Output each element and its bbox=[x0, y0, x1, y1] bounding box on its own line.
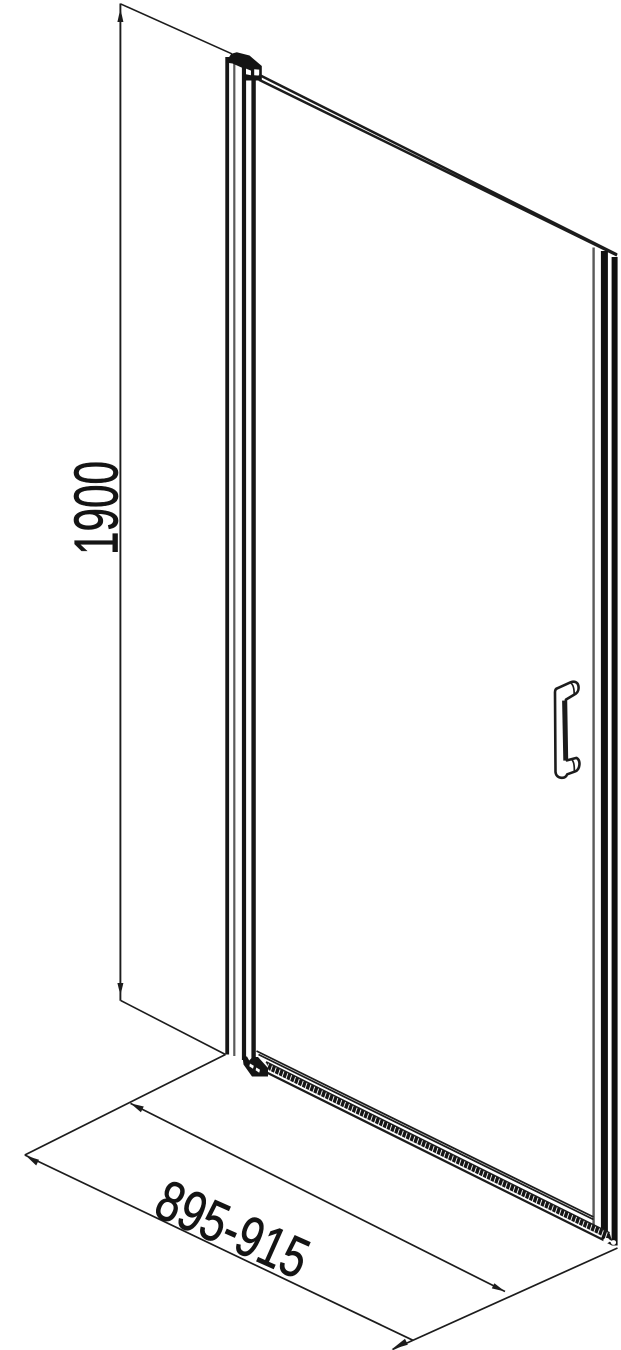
svg-text:1900: 1900 bbox=[63, 461, 132, 555]
